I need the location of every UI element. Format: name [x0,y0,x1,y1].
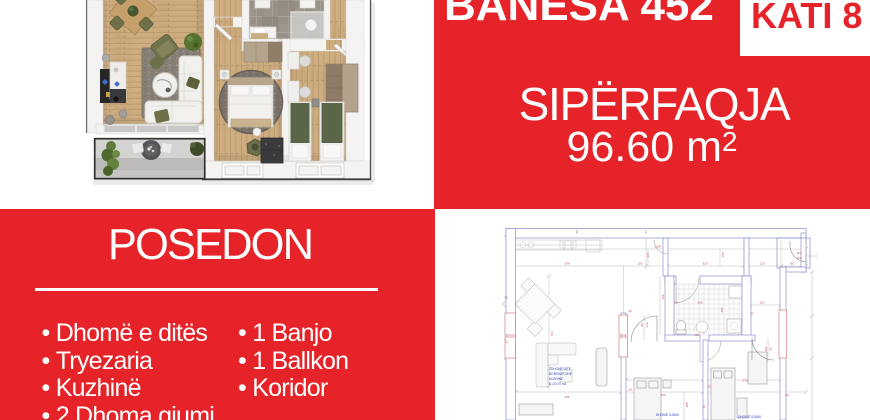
svg-text:80: 80 [640,323,644,327]
svg-text:DHOMË GJUMI: DHOMË GJUMI [656,413,679,417]
svg-text:20: 20 [628,309,632,313]
svg-text:30: 30 [575,230,579,234]
svg-text:205: 205 [720,307,724,312]
svg-text:30: 30 [505,296,509,300]
svg-text:220: 220 [796,256,801,260]
svg-text:140: 140 [721,252,725,257]
svg-text:150: 150 [661,294,665,299]
svg-text:20: 20 [707,385,711,389]
svg-text:720: 720 [550,331,554,336]
svg-text:20: 20 [674,301,678,305]
svg-text:80: 80 [790,262,794,266]
svg-text:485: 485 [685,402,689,407]
svg-text:90: 90 [769,347,773,351]
svg-text:33: 33 [644,230,648,234]
svg-text:100: 100 [796,251,801,255]
svg-text:NGRENJE DHE: NGRENJE DHE [549,372,572,376]
svg-text:ZDHOMË DITE,: ZDHOMË DITE, [549,367,572,371]
svg-text:120: 120 [759,262,764,266]
svg-text:398: 398 [564,395,569,399]
svg-text:20: 20 [628,388,632,392]
svg-text:S=20.70 m2: S=20.70 m2 [549,382,567,386]
svg-text:30: 30 [702,405,706,409]
svg-text:DHOMË GJUMI: DHOMË GJUMI [738,415,761,419]
svg-text:20: 20 [750,312,754,316]
svg-text:150: 150 [637,262,642,266]
svg-text:KUZHINE: KUZHINE [549,377,563,381]
svg-text:1087: 1087 [655,245,662,249]
svg-text:260: 260 [660,393,665,397]
svg-text:30: 30 [505,340,509,344]
svg-text:20: 20 [695,333,699,337]
svg-text:270: 270 [742,379,747,383]
svg-text:137: 137 [646,252,650,257]
svg-text:120: 120 [759,301,764,305]
svg-text:230: 230 [645,322,649,327]
svg-text:398: 398 [564,262,569,266]
svg-text:320: 320 [702,262,707,266]
svg-text:30: 30 [785,393,789,397]
svg-text:280: 280 [697,301,702,305]
svg-text:302: 302 [764,346,768,351]
